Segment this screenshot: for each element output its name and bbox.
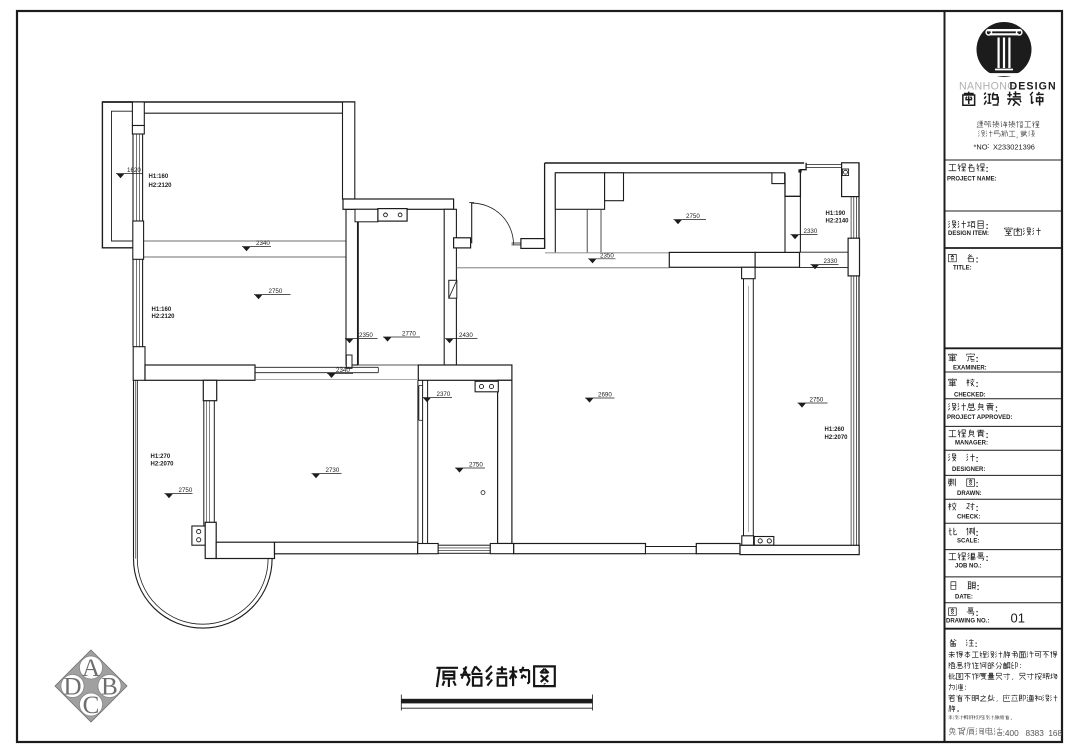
svg-text:DESIGNER:: DESIGNER:: [952, 467, 985, 473]
svg-text::: :: [986, 553, 989, 563]
svg-text:2330: 2330: [804, 228, 818, 235]
svg-text::: :: [976, 479, 979, 489]
svg-text:2330: 2330: [824, 258, 838, 265]
svg-text::: :: [976, 528, 979, 538]
svg-text:2370: 2370: [437, 391, 451, 398]
svg-text:,: ,: [1016, 131, 1018, 140]
svg-text:H1:160: H1:160: [149, 174, 169, 180]
svg-text:PROJECT APPROVED:: PROJECT APPROVED:: [947, 415, 1012, 421]
svg-text:2750: 2750: [810, 397, 824, 404]
svg-text:2350: 2350: [359, 332, 373, 339]
svg-text:H1:190: H1:190: [826, 211, 846, 217]
svg-text:NANHONG: NANHONG: [959, 81, 1016, 93]
svg-text:SCALE:: SCALE:: [957, 538, 979, 544]
svg-text:2750: 2750: [469, 462, 483, 469]
svg-text:EXAMINER:: EXAMINER:: [953, 365, 987, 371]
svg-text::: :: [976, 255, 979, 265]
svg-text::: :: [986, 221, 989, 231]
svg-text:TITLE:: TITLE:: [953, 265, 972, 271]
svg-text:MANAGER:: MANAGER:: [955, 440, 988, 446]
svg-text::: :: [976, 454, 979, 464]
svg-text:H1:270: H1:270: [151, 454, 171, 460]
svg-text:H2:2070: H2:2070: [151, 461, 175, 467]
svg-text:2340: 2340: [336, 367, 350, 374]
svg-text::: :: [976, 503, 979, 513]
svg-text::: :: [975, 640, 978, 649]
svg-text:2750: 2750: [269, 288, 283, 295]
svg-text:B: B: [101, 674, 118, 701]
svg-text::: :: [995, 403, 998, 413]
svg-text:A: A: [82, 655, 100, 682]
svg-text:2770: 2770: [402, 331, 416, 338]
svg-text:8383: 8383: [1025, 728, 1044, 738]
svg-text:DATE:: DATE:: [955, 594, 973, 600]
svg-text::: :: [986, 164, 989, 174]
svg-text:1620: 1620: [127, 167, 141, 174]
svg-text:DRAWING NO.:: DRAWING NO.:: [946, 618, 989, 624]
svg-text:X233021396: X233021396: [993, 142, 1035, 151]
svg-text:168: 168: [1048, 728, 1062, 738]
svg-text:2690: 2690: [598, 392, 612, 399]
svg-text::: :: [977, 582, 980, 592]
svg-text:H2:2070: H2:2070: [825, 435, 849, 441]
svg-text:H2:2120: H2:2120: [152, 314, 176, 320]
svg-text:H2:2140: H2:2140: [826, 218, 850, 224]
svg-text:DESIGN ITEM:: DESIGN ITEM:: [948, 231, 989, 237]
svg-text:H2:2120: H2:2120: [149, 183, 173, 189]
svg-text:PROJECT NAME:: PROJECT NAME:: [947, 176, 997, 182]
svg-text:DESIGN: DESIGN: [1010, 81, 1057, 93]
svg-text:2430: 2430: [459, 332, 473, 339]
svg-text::: :: [976, 379, 979, 389]
svg-text:H1:160: H1:160: [152, 307, 172, 313]
svg-text:*NO: *NO: [974, 142, 988, 151]
svg-text:2750: 2750: [179, 487, 193, 494]
svg-text:2350: 2350: [600, 252, 614, 259]
svg-text:D: D: [63, 674, 81, 701]
svg-text:JOB NO.:: JOB NO.:: [955, 563, 982, 569]
svg-text:C: C: [83, 692, 100, 719]
svg-text::400: :400: [1003, 728, 1020, 738]
svg-text:CHECK:: CHECK:: [957, 514, 980, 520]
svg-text::: :: [976, 608, 979, 618]
svg-text:2730: 2730: [326, 467, 340, 474]
svg-text:DRAWN:: DRAWN:: [957, 491, 982, 497]
svg-text::: :: [986, 430, 989, 440]
svg-text:01: 01: [1011, 611, 1025, 626]
svg-text:H1:260: H1:260: [825, 427, 845, 433]
svg-text::: :: [976, 354, 979, 364]
svg-text:2340: 2340: [256, 240, 270, 247]
svg-text:CHECKED:: CHECKED:: [954, 392, 986, 398]
svg-text:2750: 2750: [686, 213, 700, 220]
